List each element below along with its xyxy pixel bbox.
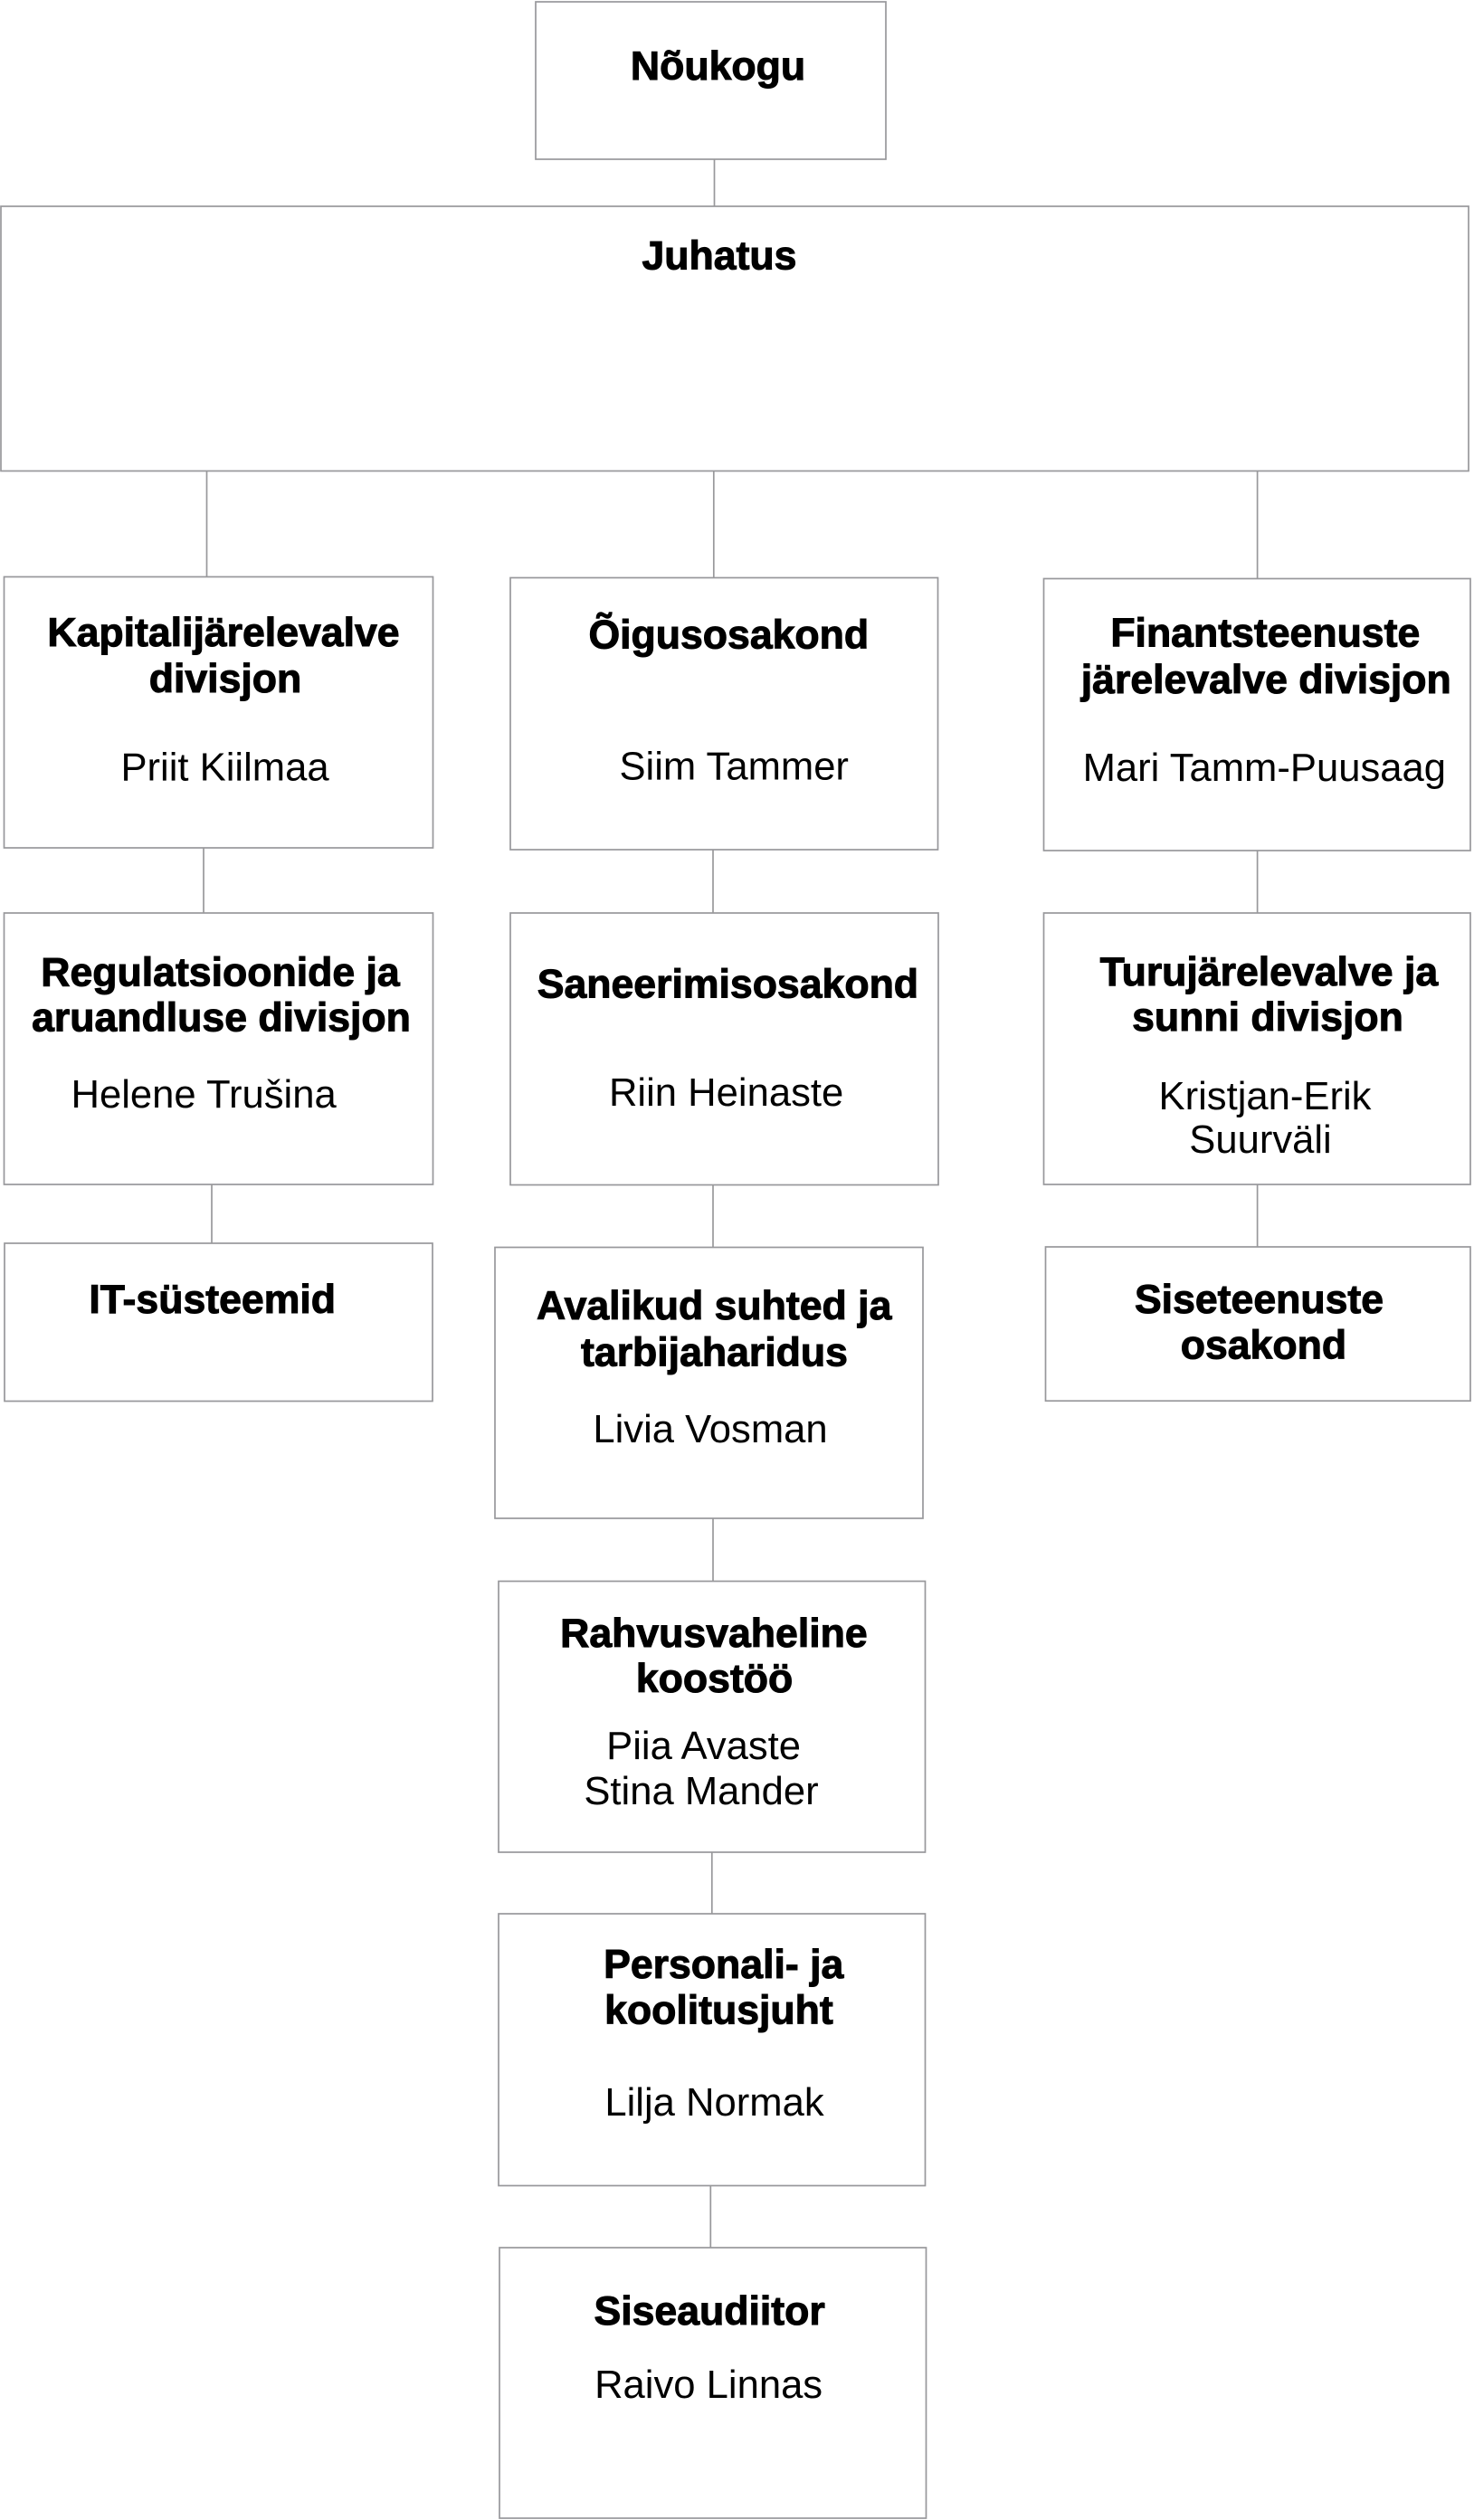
svg-text:Regulatsioonide ja: Regulatsioonide ja xyxy=(41,951,401,995)
svg-text:Kapitalijärelevalve: Kapitalijärelevalve xyxy=(47,611,399,655)
svg-text:Õigusosakond: Õigusosakond xyxy=(588,613,869,658)
svg-text:Mari Tamm-Puusaag: Mari Tamm-Puusaag xyxy=(1083,746,1446,790)
svg-text:Finantsteenuste: Finantsteenuste xyxy=(1110,612,1420,656)
svg-text:Siim Tammer: Siim Tammer xyxy=(619,746,849,789)
svg-text:Priit Kiilmaa: Priit Kiilmaa xyxy=(120,746,329,790)
svg-text:järelevalve divisjon: järelevalve divisjon xyxy=(1080,658,1451,702)
svg-text:Lilja Normak: Lilja Normak xyxy=(604,2081,823,2125)
svg-text:osakond: osakond xyxy=(1181,1324,1346,1368)
svg-text:Saneerimisosakond: Saneerimisosakond xyxy=(537,963,918,1007)
svg-text:Nõukogu: Nõukogu xyxy=(631,44,805,89)
svg-text:Raivo Linnas: Raivo Linnas xyxy=(594,2363,823,2407)
svg-text:Stina Mander: Stina Mander xyxy=(584,1770,818,1813)
svg-text:IT-süsteemid: IT-süsteemid xyxy=(89,1278,336,1322)
svg-text:Juhatus: Juhatus xyxy=(642,234,797,279)
svg-text:Suurväli: Suurväli xyxy=(1189,1118,1332,1162)
svg-text:Avalikud suhted ja: Avalikud suhted ja xyxy=(537,1284,893,1328)
svg-text:koolitusjuht: koolitusjuht xyxy=(604,1989,833,2033)
svg-text:Personali- ja: Personali- ja xyxy=(604,1943,844,1987)
svg-text:tarbijaharidus: tarbijaharidus xyxy=(581,1331,848,1375)
svg-text:Kristjan-Erik: Kristjan-Erik xyxy=(1159,1075,1372,1118)
svg-text:Helene Trušina: Helene Trušina xyxy=(71,1073,337,1117)
svg-text:aruandluse divisjon: aruandluse divisjon xyxy=(32,996,411,1041)
svg-text:Livia Vosman: Livia Vosman xyxy=(593,1408,827,1451)
svg-text:Turujärelevalve ja: Turujärelevalve ja xyxy=(1100,950,1440,994)
svg-text:Siseteenuste: Siseteenuste xyxy=(1135,1278,1384,1322)
svg-text:sunni divisjon: sunni divisjon xyxy=(1132,995,1403,1040)
svg-text:divisjon: divisjon xyxy=(149,657,302,701)
svg-text:Rahvusvaheline: Rahvusvaheline xyxy=(560,1612,868,1656)
svg-text:Siseaudiitor: Siseaudiitor xyxy=(594,2289,824,2334)
svg-text:Piia Avaste: Piia Avaste xyxy=(606,1725,801,1768)
svg-text:koostöö: koostöö xyxy=(636,1657,793,1701)
svg-text:Riin Heinaste: Riin Heinaste xyxy=(609,1071,843,1115)
